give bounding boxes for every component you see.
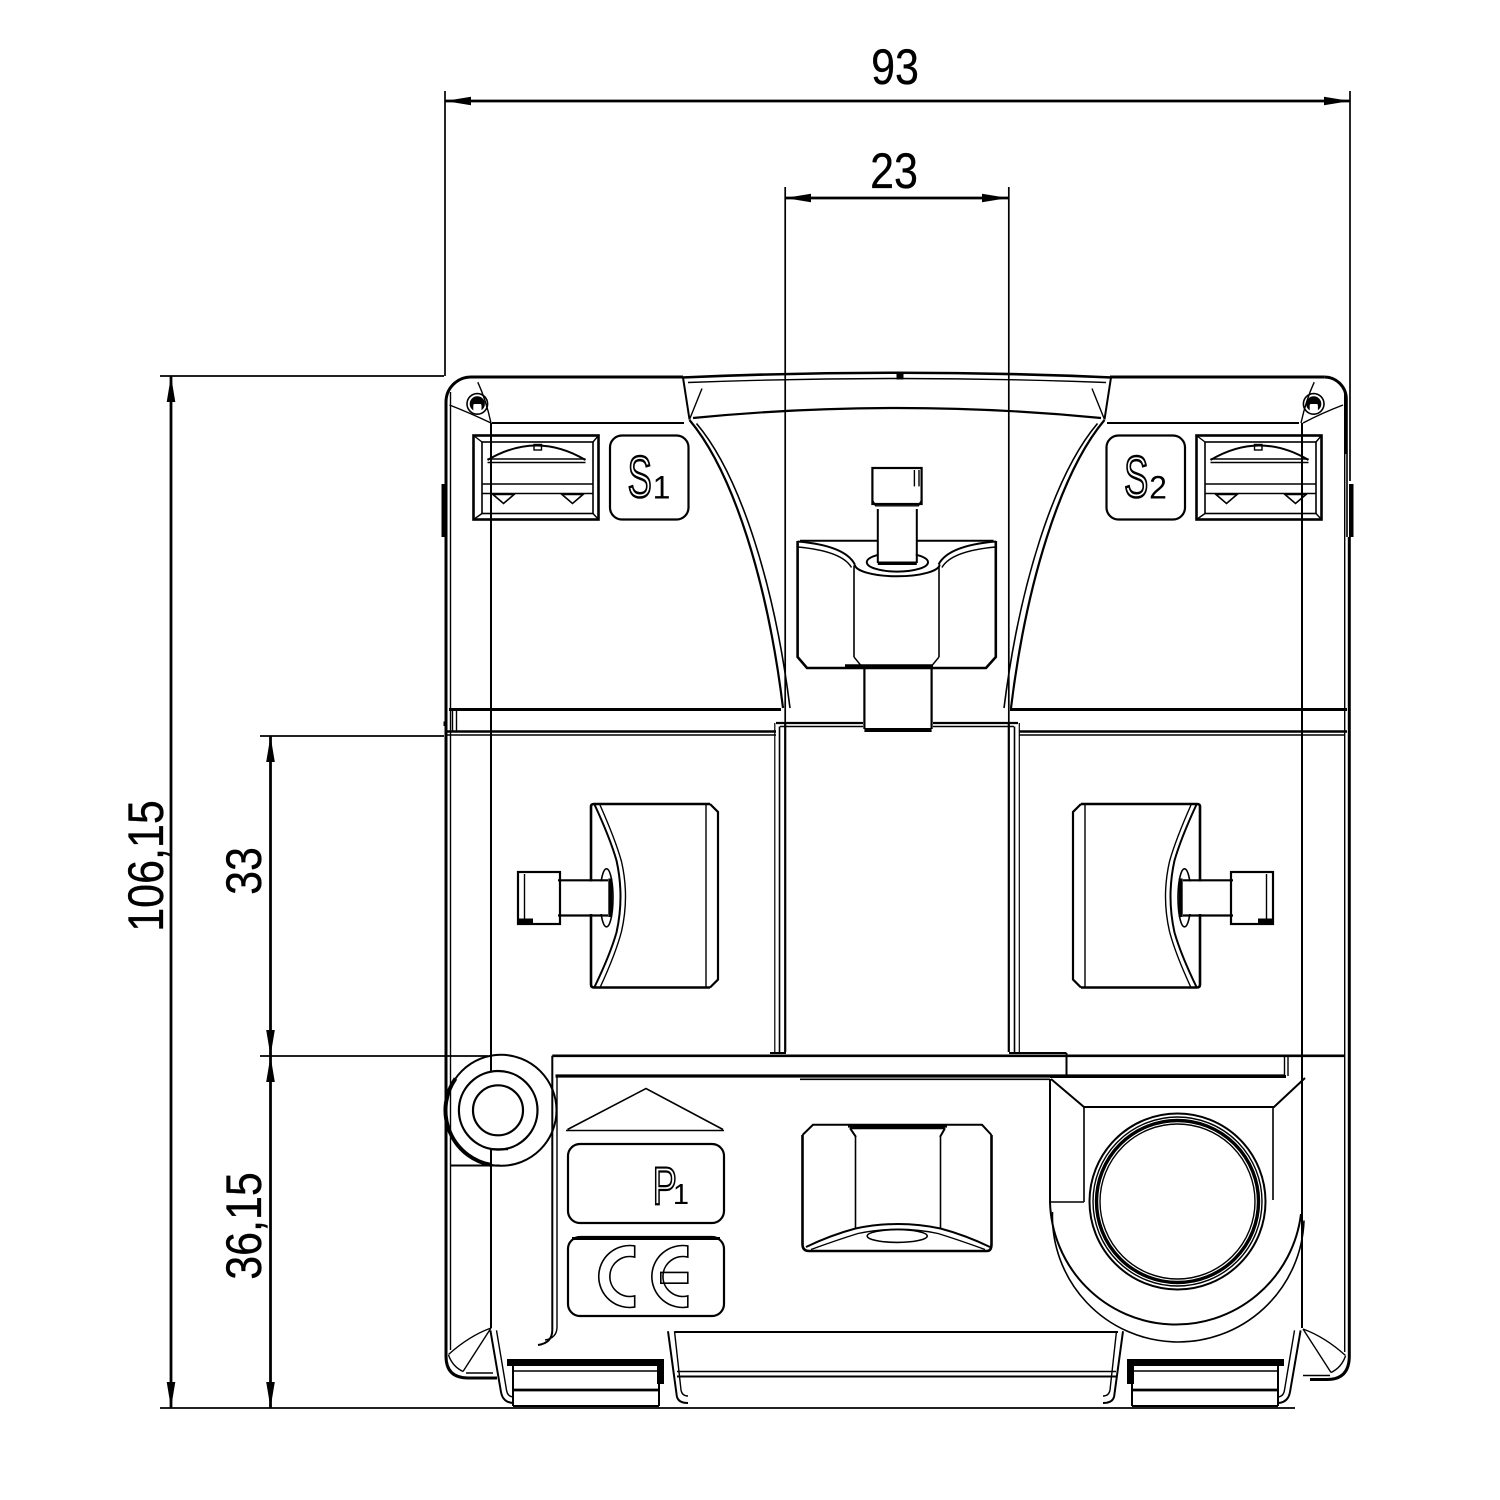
svg-text:2: 2 bbox=[1149, 470, 1167, 506]
svg-text:93: 93 bbox=[871, 39, 919, 95]
svg-text:1: 1 bbox=[673, 1179, 689, 1211]
svg-text:S: S bbox=[1124, 445, 1148, 510]
svg-text:36,15: 36,15 bbox=[216, 1172, 272, 1280]
svg-text:S: S bbox=[628, 445, 652, 510]
svg-text:106,15: 106,15 bbox=[118, 800, 174, 932]
svg-text:33: 33 bbox=[216, 847, 272, 895]
svg-text:1: 1 bbox=[653, 470, 671, 506]
svg-text:23: 23 bbox=[870, 143, 918, 199]
